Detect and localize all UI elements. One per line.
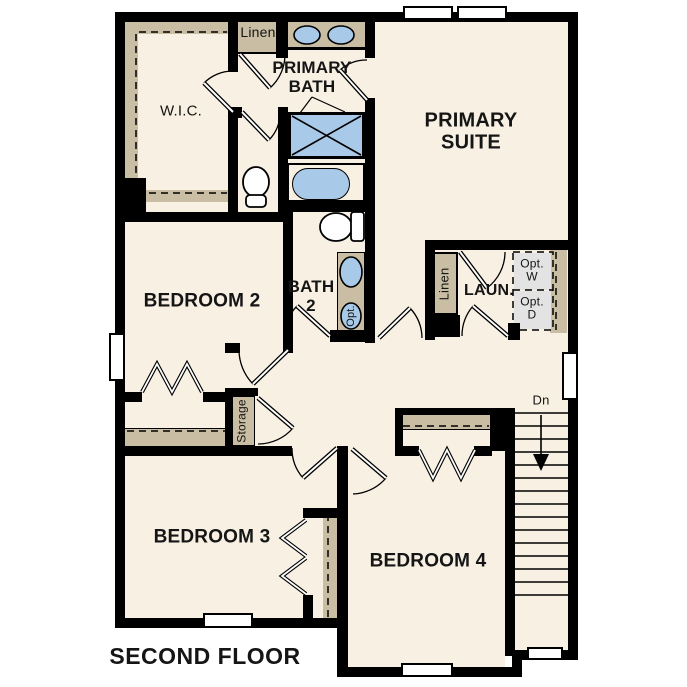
window xyxy=(527,647,563,660)
wall xyxy=(365,98,375,343)
wall xyxy=(228,107,242,118)
wall xyxy=(395,446,419,456)
wall xyxy=(115,12,577,22)
floor-area-stair-landing xyxy=(515,618,568,650)
wall xyxy=(505,446,515,656)
floor-area-bedroom4-lower xyxy=(348,618,505,667)
room-label-wic: W.I.C. xyxy=(160,104,202,121)
wall xyxy=(303,595,313,618)
bedroom4-closet-shelf xyxy=(402,414,490,430)
room-label-bedroom4: BEDROOM 4 xyxy=(370,550,487,571)
label-optional-washer: Opt. W xyxy=(520,258,543,285)
label-optional-sink: Opt. xyxy=(345,305,357,327)
wall xyxy=(508,323,520,340)
shower xyxy=(288,112,365,159)
wall xyxy=(337,446,348,677)
wall xyxy=(115,446,292,456)
wall xyxy=(115,12,125,628)
closet-label-linen-hall: Linen xyxy=(240,25,275,41)
bathtub-basin xyxy=(292,168,350,200)
wall xyxy=(425,240,577,250)
wall xyxy=(115,392,142,402)
wic-shelf-top xyxy=(125,22,228,34)
wall xyxy=(225,388,233,451)
window xyxy=(562,352,578,400)
wic-shelf-left xyxy=(125,22,138,198)
window xyxy=(203,613,253,628)
room-label-laundry: LAUN. xyxy=(464,282,514,300)
wall xyxy=(225,388,258,396)
floor-plan-title: SECOND FLOOR xyxy=(109,644,300,670)
label-stairs-down: Dn xyxy=(532,394,549,409)
wall xyxy=(228,112,238,212)
wall xyxy=(395,408,403,451)
bedroom2-closet-shelf xyxy=(125,428,226,447)
room-label-bedroom3: BEDROOM 3 xyxy=(154,526,271,547)
wall xyxy=(115,178,146,212)
wall xyxy=(278,107,288,212)
window xyxy=(403,6,453,20)
wall xyxy=(568,12,578,660)
room-label-bath2: BATH 2 xyxy=(288,277,335,315)
window xyxy=(109,333,125,381)
floor-plan: W.I.C. Linen PRIMARY BATH PRIMARY SUITE … xyxy=(0,0,687,687)
wall xyxy=(228,12,238,72)
wall xyxy=(395,408,490,415)
wall xyxy=(474,446,492,456)
room-label-bedroom2: BEDROOM 2 xyxy=(144,290,261,311)
wall xyxy=(115,212,293,222)
closet-label-linen-laundry: Linen xyxy=(438,268,453,301)
window xyxy=(401,663,453,677)
wall xyxy=(303,508,348,518)
wall xyxy=(330,330,375,342)
closet-label-storage: Storage xyxy=(235,399,248,442)
wall xyxy=(225,343,240,353)
primary-vanity xyxy=(288,22,365,50)
wall xyxy=(283,200,375,212)
wall xyxy=(490,408,515,451)
wall xyxy=(432,315,460,337)
room-label-primary-bath: PRIMARY BATH xyxy=(272,58,351,96)
wall xyxy=(276,12,288,58)
laundry-counter xyxy=(550,248,567,333)
window xyxy=(457,6,507,20)
wall xyxy=(365,12,375,58)
room-label-primary-suite: PRIMARY SUITE xyxy=(425,110,518,155)
wic-shelf-bottom xyxy=(146,190,228,202)
label-optional-dryer: Opt. D xyxy=(520,296,543,323)
